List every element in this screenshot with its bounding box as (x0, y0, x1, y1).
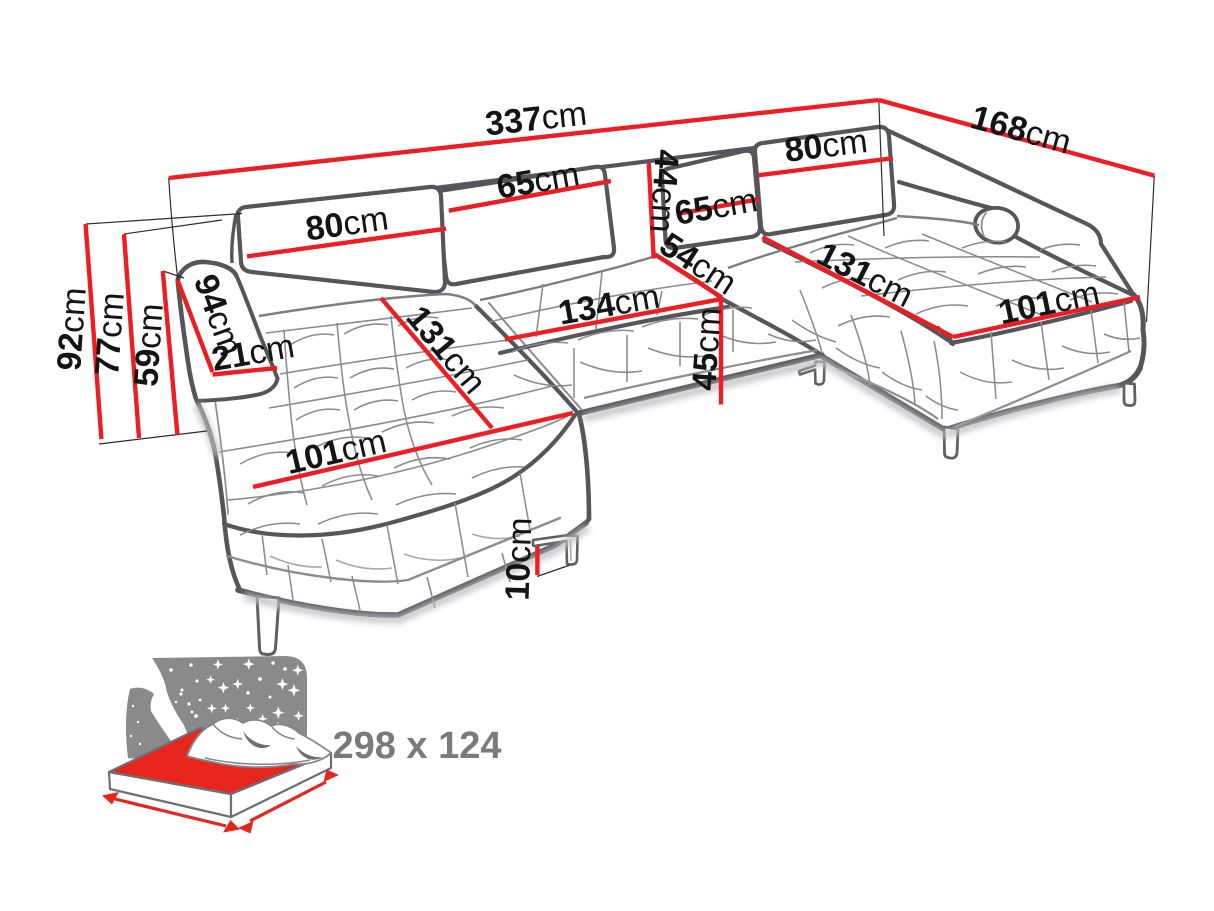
svg-text:59cm: 59cm (127, 302, 171, 388)
svg-text:10cm: 10cm (499, 517, 540, 601)
svg-text:298 x 124: 298 x 124 (332, 725, 501, 767)
svg-text:92cm: 92cm (50, 286, 94, 372)
svg-text:45cm: 45cm (685, 306, 729, 392)
svg-text:77cm: 77cm (88, 291, 132, 377)
